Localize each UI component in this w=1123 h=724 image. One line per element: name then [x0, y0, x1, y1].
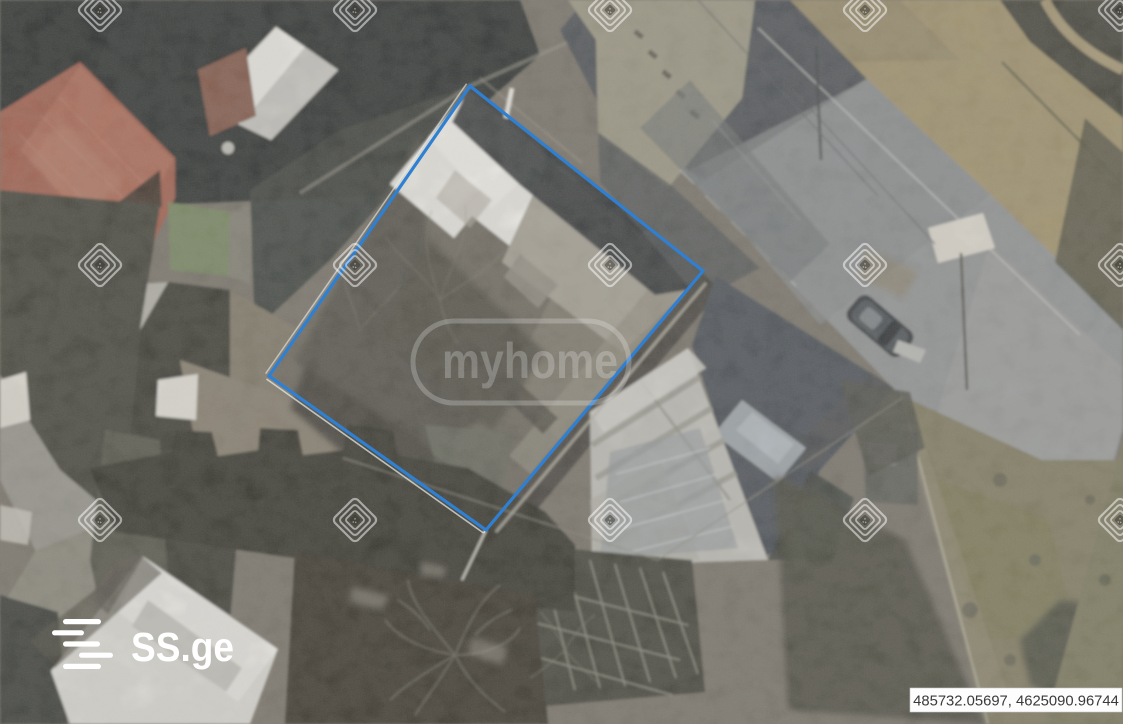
svg-text:SS.ge: SS.ge: [131, 624, 234, 670]
svg-text:myhome: myhome: [442, 333, 618, 389]
svg-text:485732.05697, 4625090.96744: 485732.05697, 4625090.96744: [913, 694, 1119, 710]
